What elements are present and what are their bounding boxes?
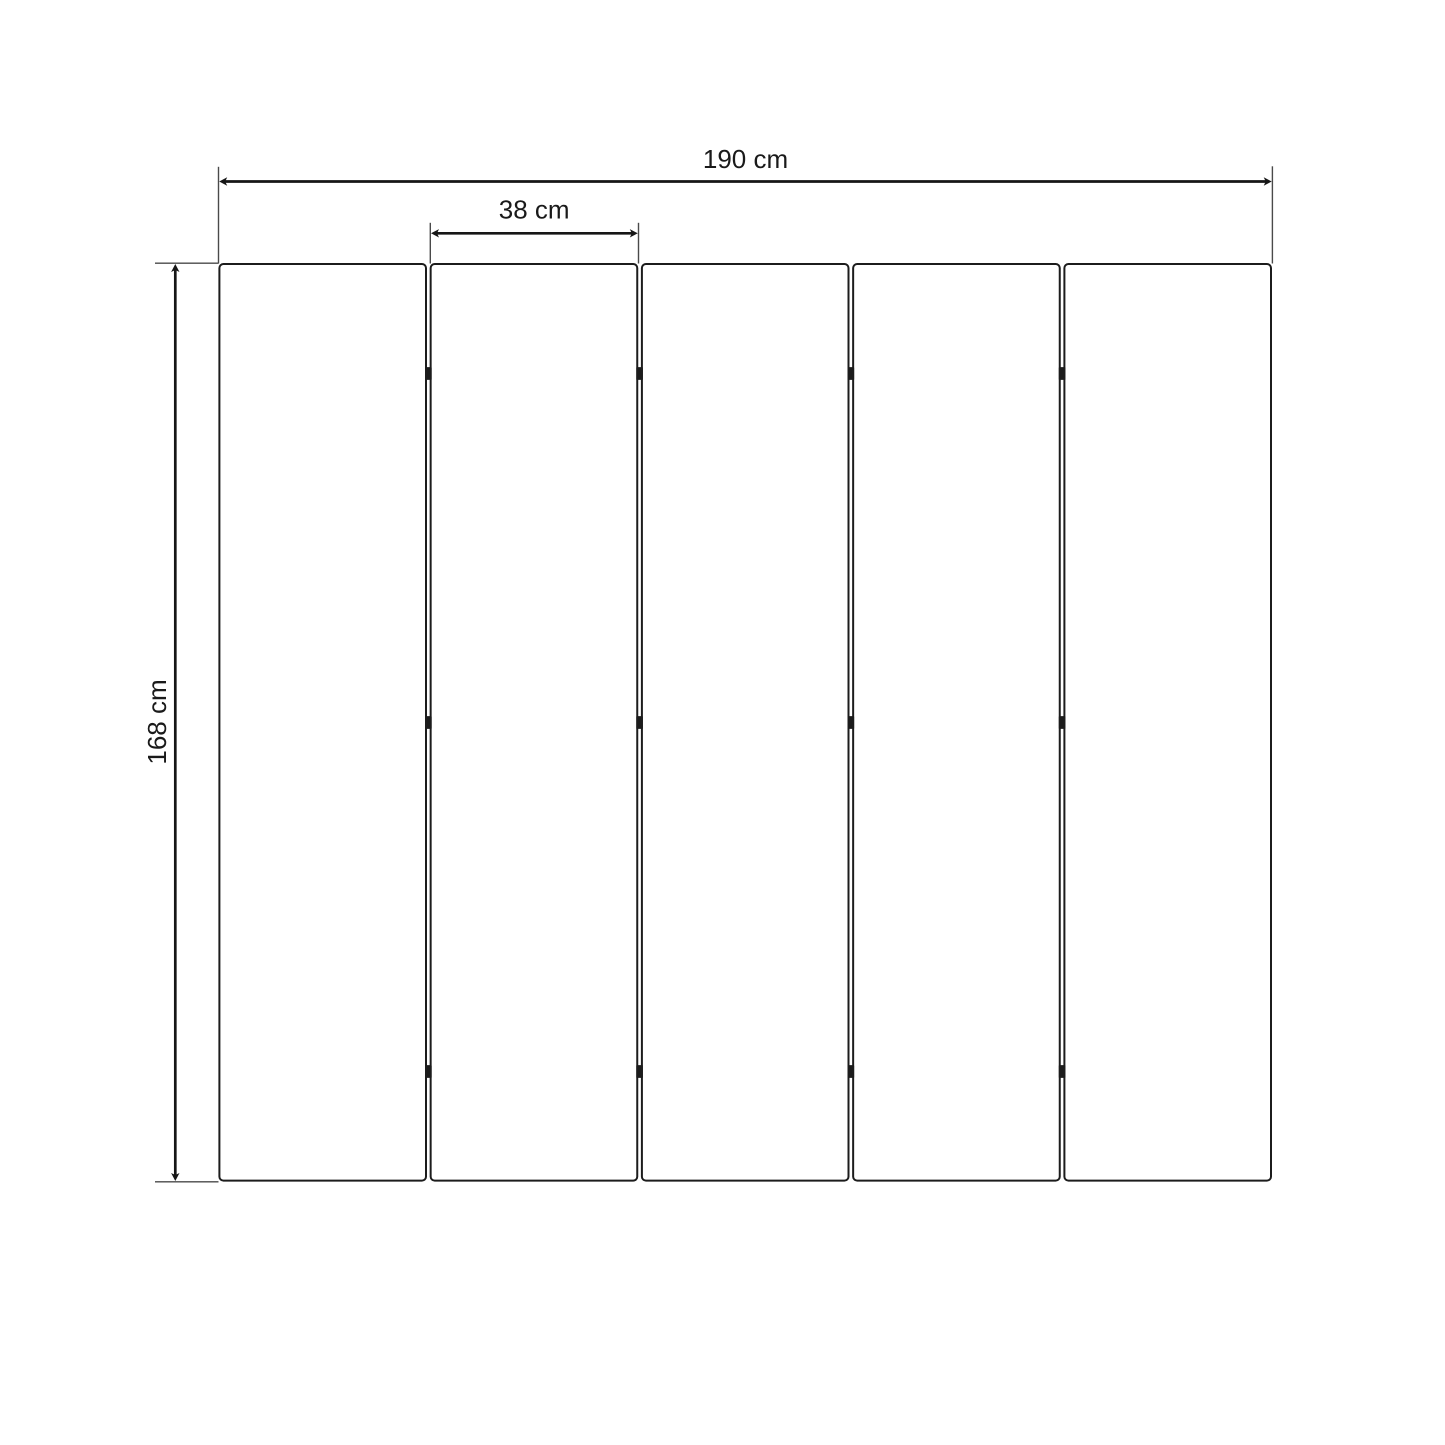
svg-text:38 cm: 38 cm [499, 195, 570, 225]
svg-text:168 cm: 168 cm [142, 679, 172, 764]
svg-text:190 cm: 190 cm [703, 144, 788, 174]
